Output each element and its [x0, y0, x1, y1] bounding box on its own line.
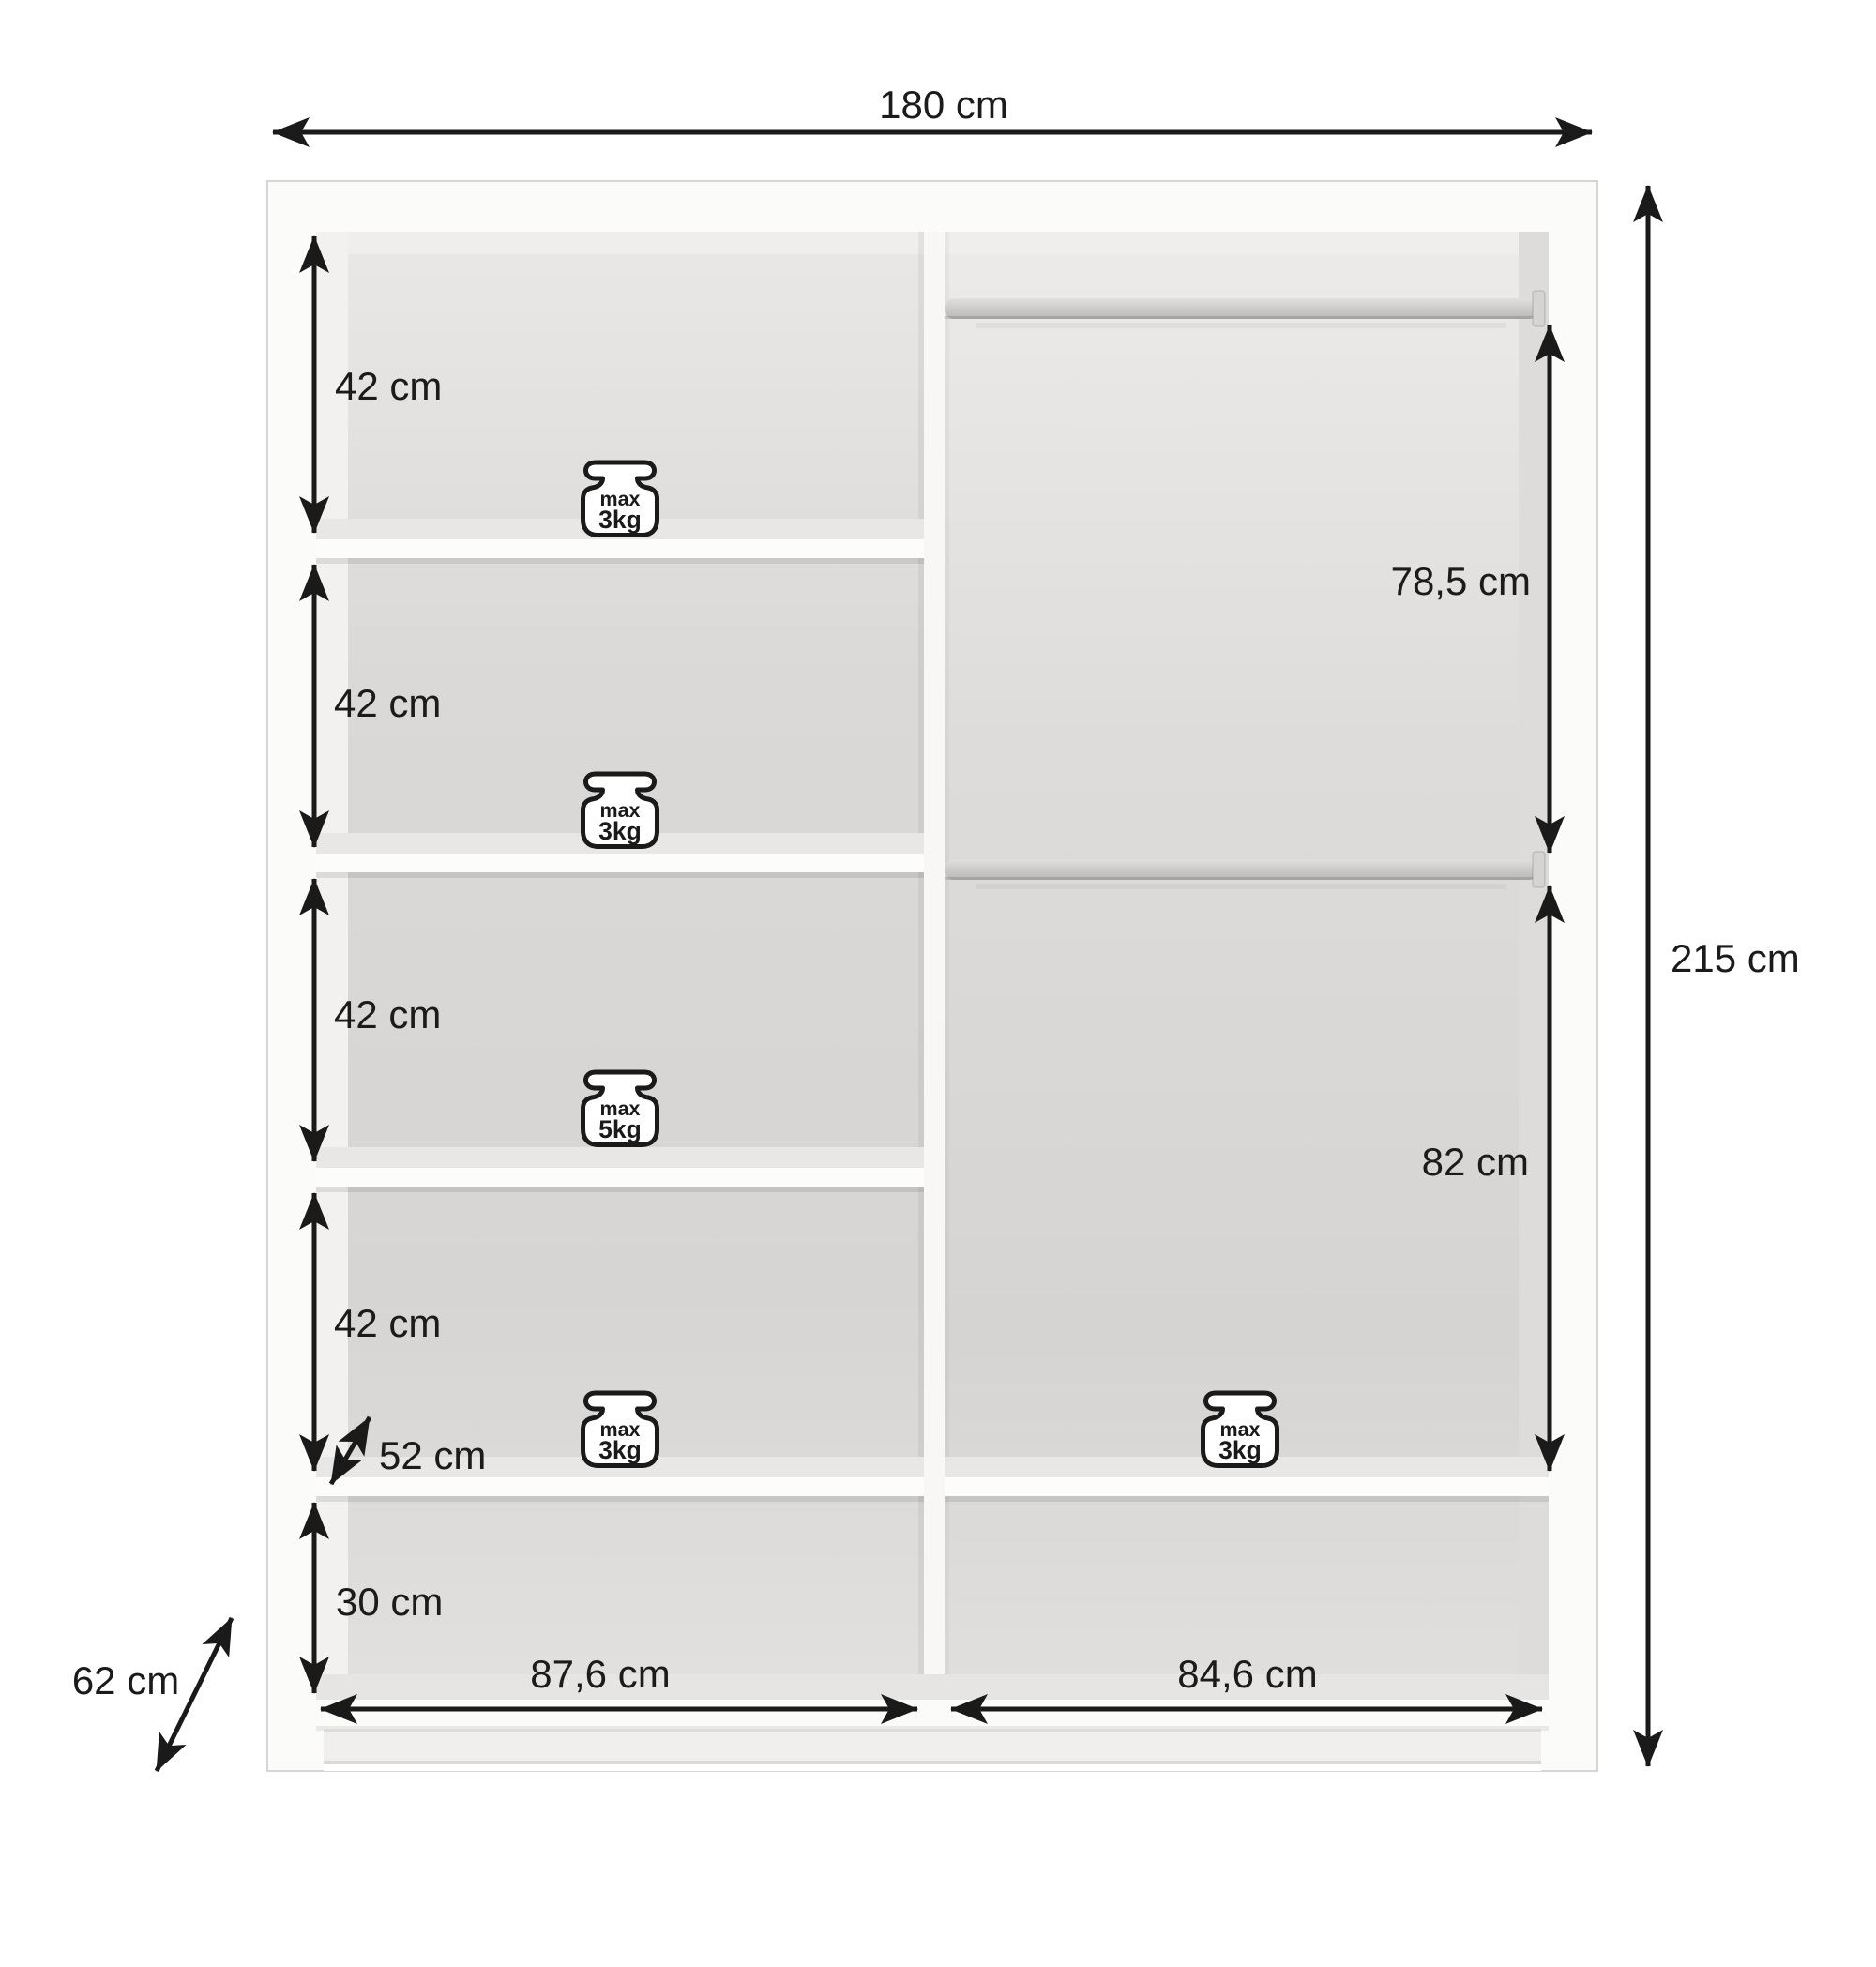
shelf-left-3: [316, 1147, 924, 1192]
weight-badge-5: max 3kg: [1203, 1393, 1278, 1466]
badge-value: 3kg: [598, 506, 642, 534]
label-section-5: 30 cm: [336, 1580, 443, 1624]
weight-badge-3: max 5kg: [583, 1072, 658, 1145]
label-overall-height: 215 cm: [1671, 936, 1800, 980]
badge-value: 3kg: [598, 1436, 642, 1464]
weight-badge-4: max 3kg: [583, 1393, 658, 1466]
wardrobe-body: [267, 181, 1597, 1771]
cabinet-floor: [316, 1674, 1549, 1731]
label-hanging-lower: 82 cm: [1422, 1140, 1529, 1184]
label-shelf-depth: 52 cm: [379, 1433, 486, 1477]
label-section-1: 42 cm: [335, 364, 442, 408]
diagram-canvas: max 3kg max 3kg max 5kg max 3kg max 3kg: [0, 0, 1876, 1967]
label-section-3: 42 cm: [334, 992, 441, 1036]
weight-badge-1: max 3kg: [583, 462, 658, 536]
badge-value: 3kg: [1218, 1436, 1262, 1464]
label-overall-width: 180 cm: [879, 83, 1008, 127]
weight-badge-2: max 3kg: [583, 774, 658, 847]
plinth: [324, 1729, 1541, 1771]
label-section-2: 42 cm: [334, 681, 441, 725]
badge-value: 5kg: [598, 1115, 642, 1143]
wardrobe-dimension-diagram: max 3kg max 3kg max 5kg max 3kg max 3kg: [0, 0, 1876, 1967]
label-bottom-width-right: 84,6 cm: [1177, 1652, 1317, 1696]
label-depth: 62 cm: [72, 1658, 179, 1702]
label-bottom-width-left: 87,6 cm: [530, 1652, 670, 1696]
badge-value: 3kg: [598, 817, 642, 845]
label-hanging-upper: 78,5 cm: [1391, 559, 1531, 603]
label-section-4: 42 cm: [334, 1301, 441, 1345]
